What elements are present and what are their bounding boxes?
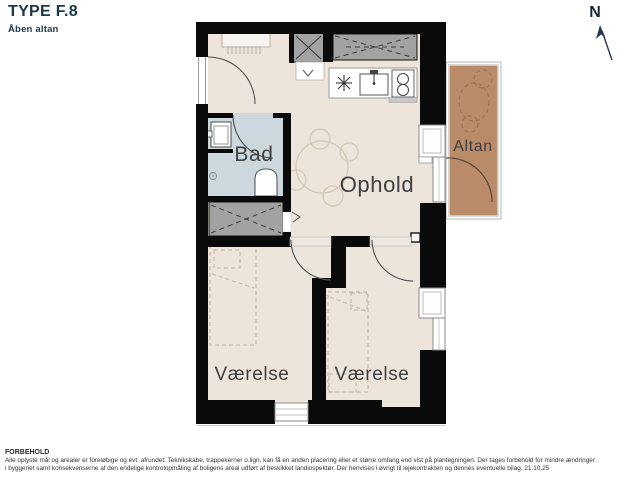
wall-bottom-left [196,400,275,424]
ventilation-niche [296,62,324,80]
floor-plan-drawing: Bad Ophold Altan Værelse Værelse N [0,0,637,480]
wall-left-upper [196,22,208,57]
disclaimer-line-2: i byggeriet samt konsekvenserne af den e… [5,465,637,473]
bedroom1-window [275,403,308,421]
disclaimer: FORBEHOLD Alle oplyste mål og arealer er… [5,449,637,473]
balcony-label: Altan [453,138,492,155]
north-compass: N [589,4,612,60]
wall-bottom-right [382,407,446,424]
wall-between-cabinets [323,22,333,62]
wardrobe-body [222,32,270,47]
bath-wall-right [283,113,291,202]
wall-right-upper [420,22,446,125]
bedroom2-door-opening [370,237,411,246]
kitchen-faucet-base [370,70,378,74]
bath-wall-top-left [208,113,233,118]
stove [392,70,414,97]
kitchen-lamp-icon [336,75,352,91]
cabinet-door-opening [283,212,291,232]
disclaimer-heading: FORBEHOLD [5,449,637,456]
living-room-label: Ophold [340,172,415,197]
wall-top [196,22,445,34]
bathroom-tap [208,131,213,137]
shower-drain-dot [212,175,214,177]
wall-left-lower [196,104,208,424]
bathroom-label: Bad [234,143,273,166]
counter-shadow [389,98,417,103]
kitchen [329,68,417,103]
bedroom1-label: Værelse [215,364,290,385]
window-sill [419,157,432,163]
wall-cabinet-stub [289,33,294,63]
column [411,233,420,242]
wall-hall-bedroom1 [196,236,290,247]
cabinet3-wall-stub-upper [283,202,291,212]
kitchen-faucet-dot [373,82,376,85]
north-label: N [589,4,601,21]
wall-bedroom-divider-lower [312,288,326,407]
bath-wall-stub [208,149,233,153]
bedroom1-door-opening [290,237,331,246]
disclaimer-line-1: Alle oplyste mål og arealer er foreløbig… [5,457,637,465]
entrance-opening [196,57,208,104]
wall-right-middle [420,203,446,288]
bath-wall-bottom [208,196,291,202]
toilet [255,169,277,196]
bedroom2-label: Værelse [335,364,410,385]
floor-plan-page: TYPE F.8 Åben altan [0,0,637,480]
